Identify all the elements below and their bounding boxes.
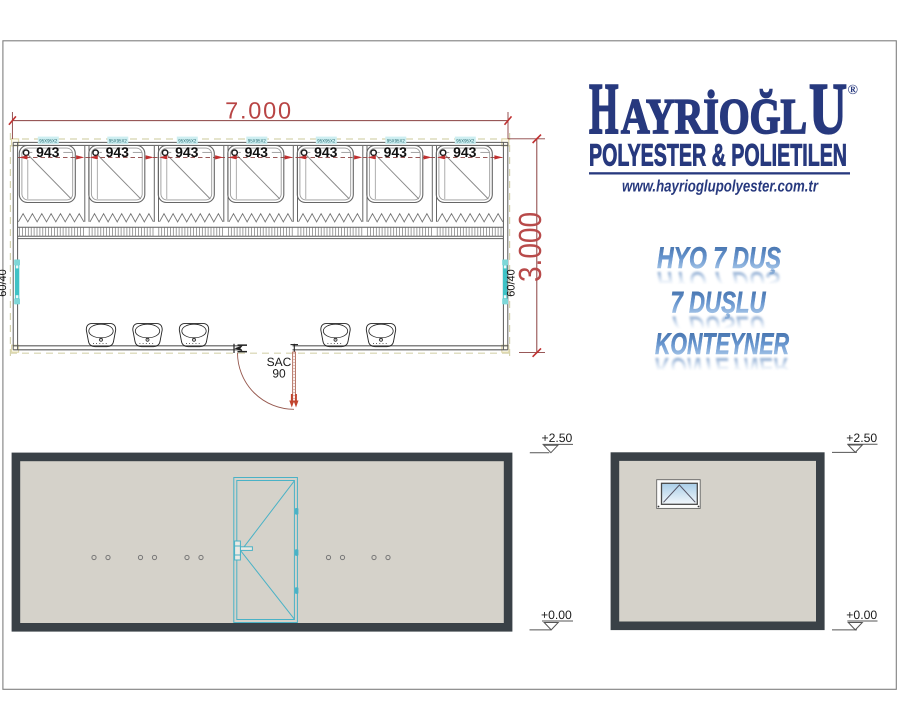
svg-text:®: ® [848,83,859,98]
svg-text:+2.50: +2.50 [846,431,877,445]
svg-text:60/40: 60/40 [0,269,9,297]
svg-text:90: 90 [272,367,286,381]
svg-text:www.hayrioglupolyester.com.tr: www.hayrioglupolyester.com.tr [622,178,819,196]
svg-text:KONTEYNER: KONTEYNER [655,351,789,384]
svg-text:3.000: 3.000 [512,212,548,282]
svg-text:+2.50: +2.50 [542,431,573,445]
svg-text:7.000: 7.000 [225,97,293,123]
svg-text:+0.00: +0.00 [846,608,877,622]
svg-text:POLYESTER & POLIETILEN: POLYESTER & POLIETILEN [589,138,847,173]
svg-text:943: 943 [245,144,269,160]
svg-text:+0.00: +0.00 [541,608,572,622]
svg-text:AYRİOĞL: AYRİOĞL [621,88,807,144]
